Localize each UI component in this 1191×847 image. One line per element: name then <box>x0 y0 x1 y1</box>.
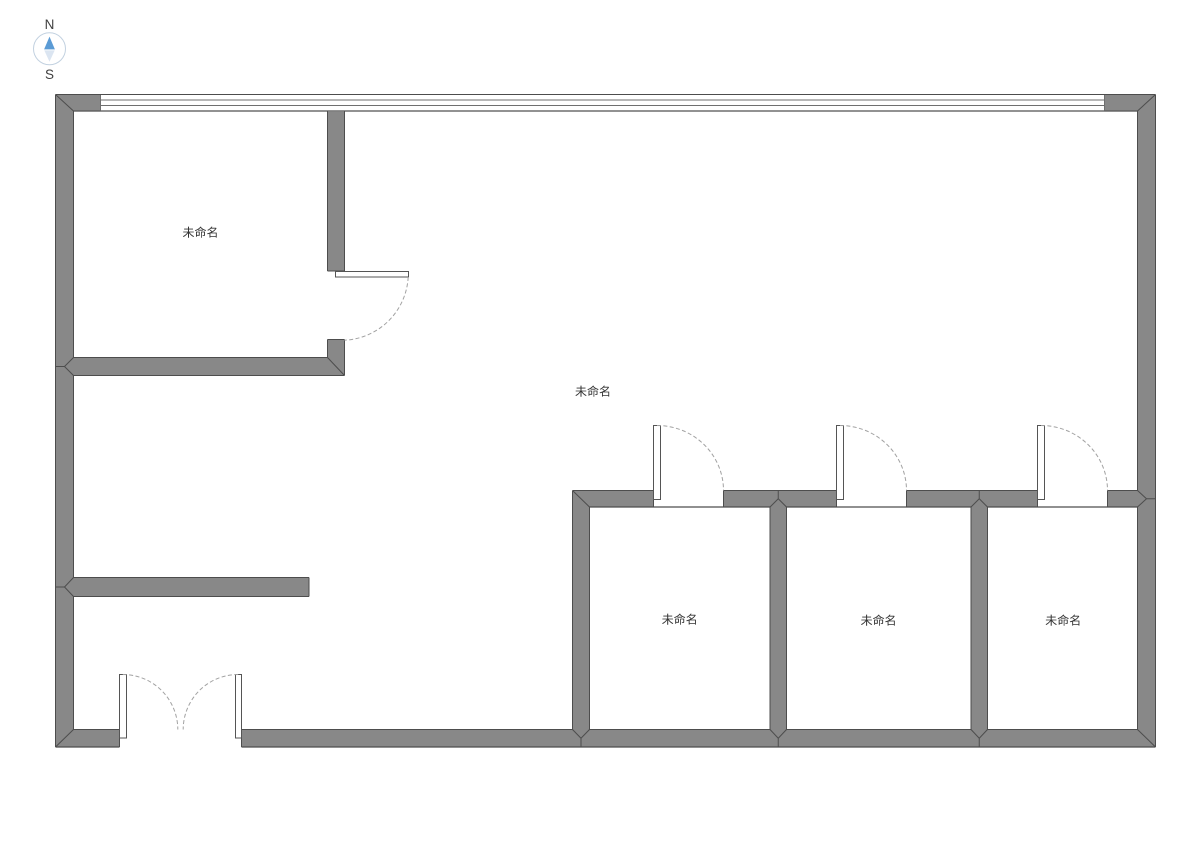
svg-text:S: S <box>45 67 54 82</box>
svg-text:N: N <box>45 17 55 32</box>
